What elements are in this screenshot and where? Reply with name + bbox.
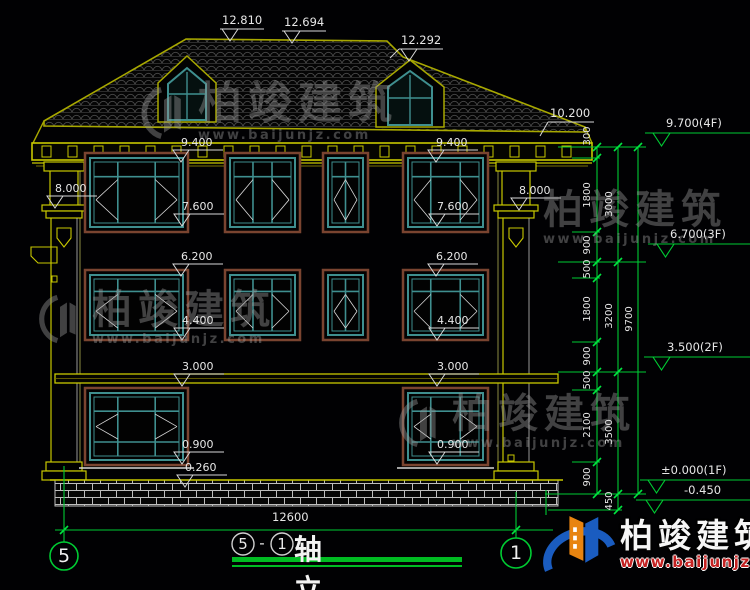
dim-chain-floor: 3000 xyxy=(605,191,615,216)
floor-level-3f: 6.700(3F) xyxy=(670,229,726,241)
plinth-base xyxy=(50,480,563,506)
roof xyxy=(33,39,592,143)
brand-name: 柏竣建筑 xyxy=(620,519,750,554)
dim-chain: 900 xyxy=(583,467,593,486)
dim-chain-total: 9700 xyxy=(625,306,635,331)
level-8000-left: 8.000 xyxy=(55,183,87,194)
dim-chain: 1800 xyxy=(583,182,593,207)
brand-logo-icon xyxy=(534,508,616,582)
title-circle-left: 5 xyxy=(238,535,248,553)
grid-bubble-1: 1 xyxy=(510,542,522,564)
level-6200: 6.200 xyxy=(436,251,468,262)
level-4400: 4.400 xyxy=(182,315,214,326)
level-7600: 7.600 xyxy=(182,201,214,212)
level-4400: 4.400 xyxy=(437,315,469,326)
dim-chain: 900 xyxy=(583,346,593,365)
dim-overall-width: 12600 xyxy=(272,512,309,524)
level-9400: 9.400 xyxy=(181,137,213,148)
dim-eave: 10.200 xyxy=(550,108,590,120)
brand-logo: 柏竣建筑 www.baijunjz.com xyxy=(534,508,750,582)
dim-chain: 900 xyxy=(583,235,593,254)
floor-level-1f: ±0.000(1F) xyxy=(661,465,726,477)
dim-ridge-mid: 12.694 xyxy=(284,17,324,29)
level-0900: 0.900 xyxy=(182,439,214,450)
floor-band xyxy=(55,374,558,383)
level-9400: 9.400 xyxy=(436,137,468,148)
dim-ridge-left: 12.810 xyxy=(222,15,262,27)
dim-chain: 500 xyxy=(583,370,593,389)
dim-chain: 1800 xyxy=(583,296,593,321)
cad-elevation-canvas: 柏竣建筑 www.baijunjz.com 柏竣建筑 www.baijunjz.… xyxy=(0,0,750,590)
dim-chain: 300 xyxy=(583,126,593,145)
title-circle-right: 1 xyxy=(277,535,287,553)
brand-url: www.baijunjz.com xyxy=(620,553,750,571)
title-decoration xyxy=(232,533,462,567)
dim-chain-floor: 3500 xyxy=(605,419,615,444)
dim-chain-floor: 3200 xyxy=(605,303,615,328)
floor-level-4f: 9.700(4F) xyxy=(666,118,722,130)
level-7600: 7.600 xyxy=(437,201,469,212)
floor-level-2f: 3.500(2F) xyxy=(667,342,723,354)
level-6200: 6.200 xyxy=(181,251,213,262)
elevation-drawing xyxy=(0,0,750,590)
dim-chain: 500 xyxy=(583,259,593,278)
level-3000: 3.000 xyxy=(437,361,469,372)
level-0260: 0.260 xyxy=(185,462,217,473)
grid-bubble-5: 5 xyxy=(58,545,70,567)
dim-ridge-right: 12.292 xyxy=(401,35,441,47)
level-0900: 0.900 xyxy=(437,439,469,450)
title-text: 轴立面图 xyxy=(294,528,326,590)
dim-chain: 2100 xyxy=(583,412,593,437)
title-separator: - xyxy=(259,534,264,552)
level-3000: 3.000 xyxy=(182,361,214,372)
level-8000-right: 8.000 xyxy=(519,185,551,196)
windows xyxy=(79,153,494,468)
floor-level-ground: -0.450 xyxy=(684,485,721,497)
